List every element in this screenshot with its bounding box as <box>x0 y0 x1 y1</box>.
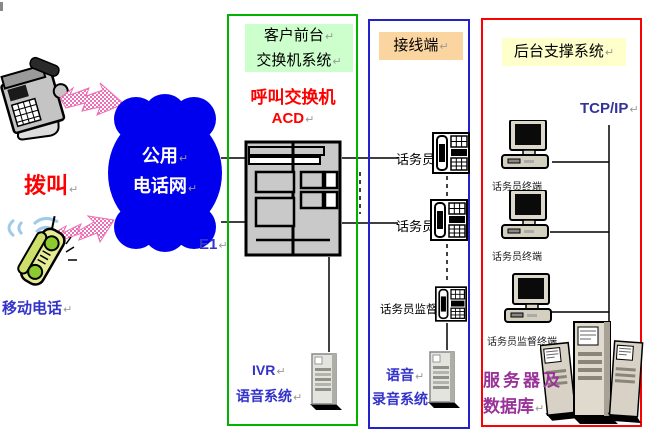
dial-label: 拨叫↵ <box>24 168 78 200</box>
paragraph-mark: ↵ <box>276 366 285 378</box>
mobile-label: 移动电话↵ <box>2 297 72 318</box>
paragraph-mark: ↵ <box>535 403 544 415</box>
front-office-header: 客户前台↵ 交换机系统↵ <box>245 24 353 72</box>
paragraph-mark: ↵ <box>188 183 197 195</box>
operator-label-3: 话务员监督 <box>380 301 438 317</box>
diagram-canvas: 拨叫↵ 公用↵ 电话网↵ <box>0 0 646 438</box>
line-terminal-header: 接线端↵ <box>379 32 463 60</box>
ivr-label-line1: IVR↵ <box>252 362 286 378</box>
paragraph-mark: ↵ <box>605 47 614 59</box>
pstn-cloud: 公用↵ 电话网↵ <box>106 92 224 254</box>
paragraph-mark: ↵ <box>63 304 72 316</box>
server-db-label-line1: 服务器及 <box>483 366 563 391</box>
terminal-pc-icon-1 <box>500 120 554 172</box>
terminal-pc-icon-2 <box>500 190 554 242</box>
ivr-label-line2: 语音系统↵ <box>236 386 302 406</box>
paragraph-mark: ↵ <box>439 41 448 53</box>
paragraph-mark: ↵ <box>332 56 341 68</box>
paragraph-mark: ↵ <box>305 114 314 126</box>
operator-phone-icon-1 <box>432 132 470 174</box>
mobile-phone-icon <box>0 214 84 300</box>
recorder-server-icon <box>427 350 461 410</box>
e1-label: E1↵ <box>199 236 228 253</box>
operator-phone-icon-3 <box>435 285 467 323</box>
acd-title-line2: ACD↵ <box>240 110 346 127</box>
paragraph-mark: ↵ <box>629 104 638 116</box>
recorder-label-line1: 语音↵ <box>386 365 424 385</box>
backend-header: 后台支撑系统↵ <box>502 38 626 66</box>
operator-phone-icon-2 <box>430 198 468 242</box>
paragraph-mark: ↵ <box>325 31 334 43</box>
terminal-label-2: 话务员终端 <box>492 248 542 263</box>
acd-title-line1: 呼叫交换机 <box>240 83 346 108</box>
paragraph-mark: ↵ <box>69 184 78 196</box>
front-office-header-line2: 交换机系统↵ <box>245 49 353 74</box>
server-db-label-line2: 数据库↵ <box>483 392 544 417</box>
front-office-header-line1: 客户前台↵ <box>245 24 353 49</box>
acd-switch-icon <box>244 140 342 257</box>
operator-label-1: 话务员 <box>396 149 435 168</box>
paragraph-mark: ↵ <box>293 392 302 404</box>
cloud-label-line1: 公用↵ <box>106 142 224 168</box>
paragraph-mark: ↵ <box>179 153 188 165</box>
cloud-label-line2: 电话网↵ <box>106 172 224 198</box>
tcpip-label: TCP/IP↵ <box>580 100 639 117</box>
paragraph-mark: ↵ <box>415 371 424 383</box>
ivr-server-icon <box>309 352 343 412</box>
